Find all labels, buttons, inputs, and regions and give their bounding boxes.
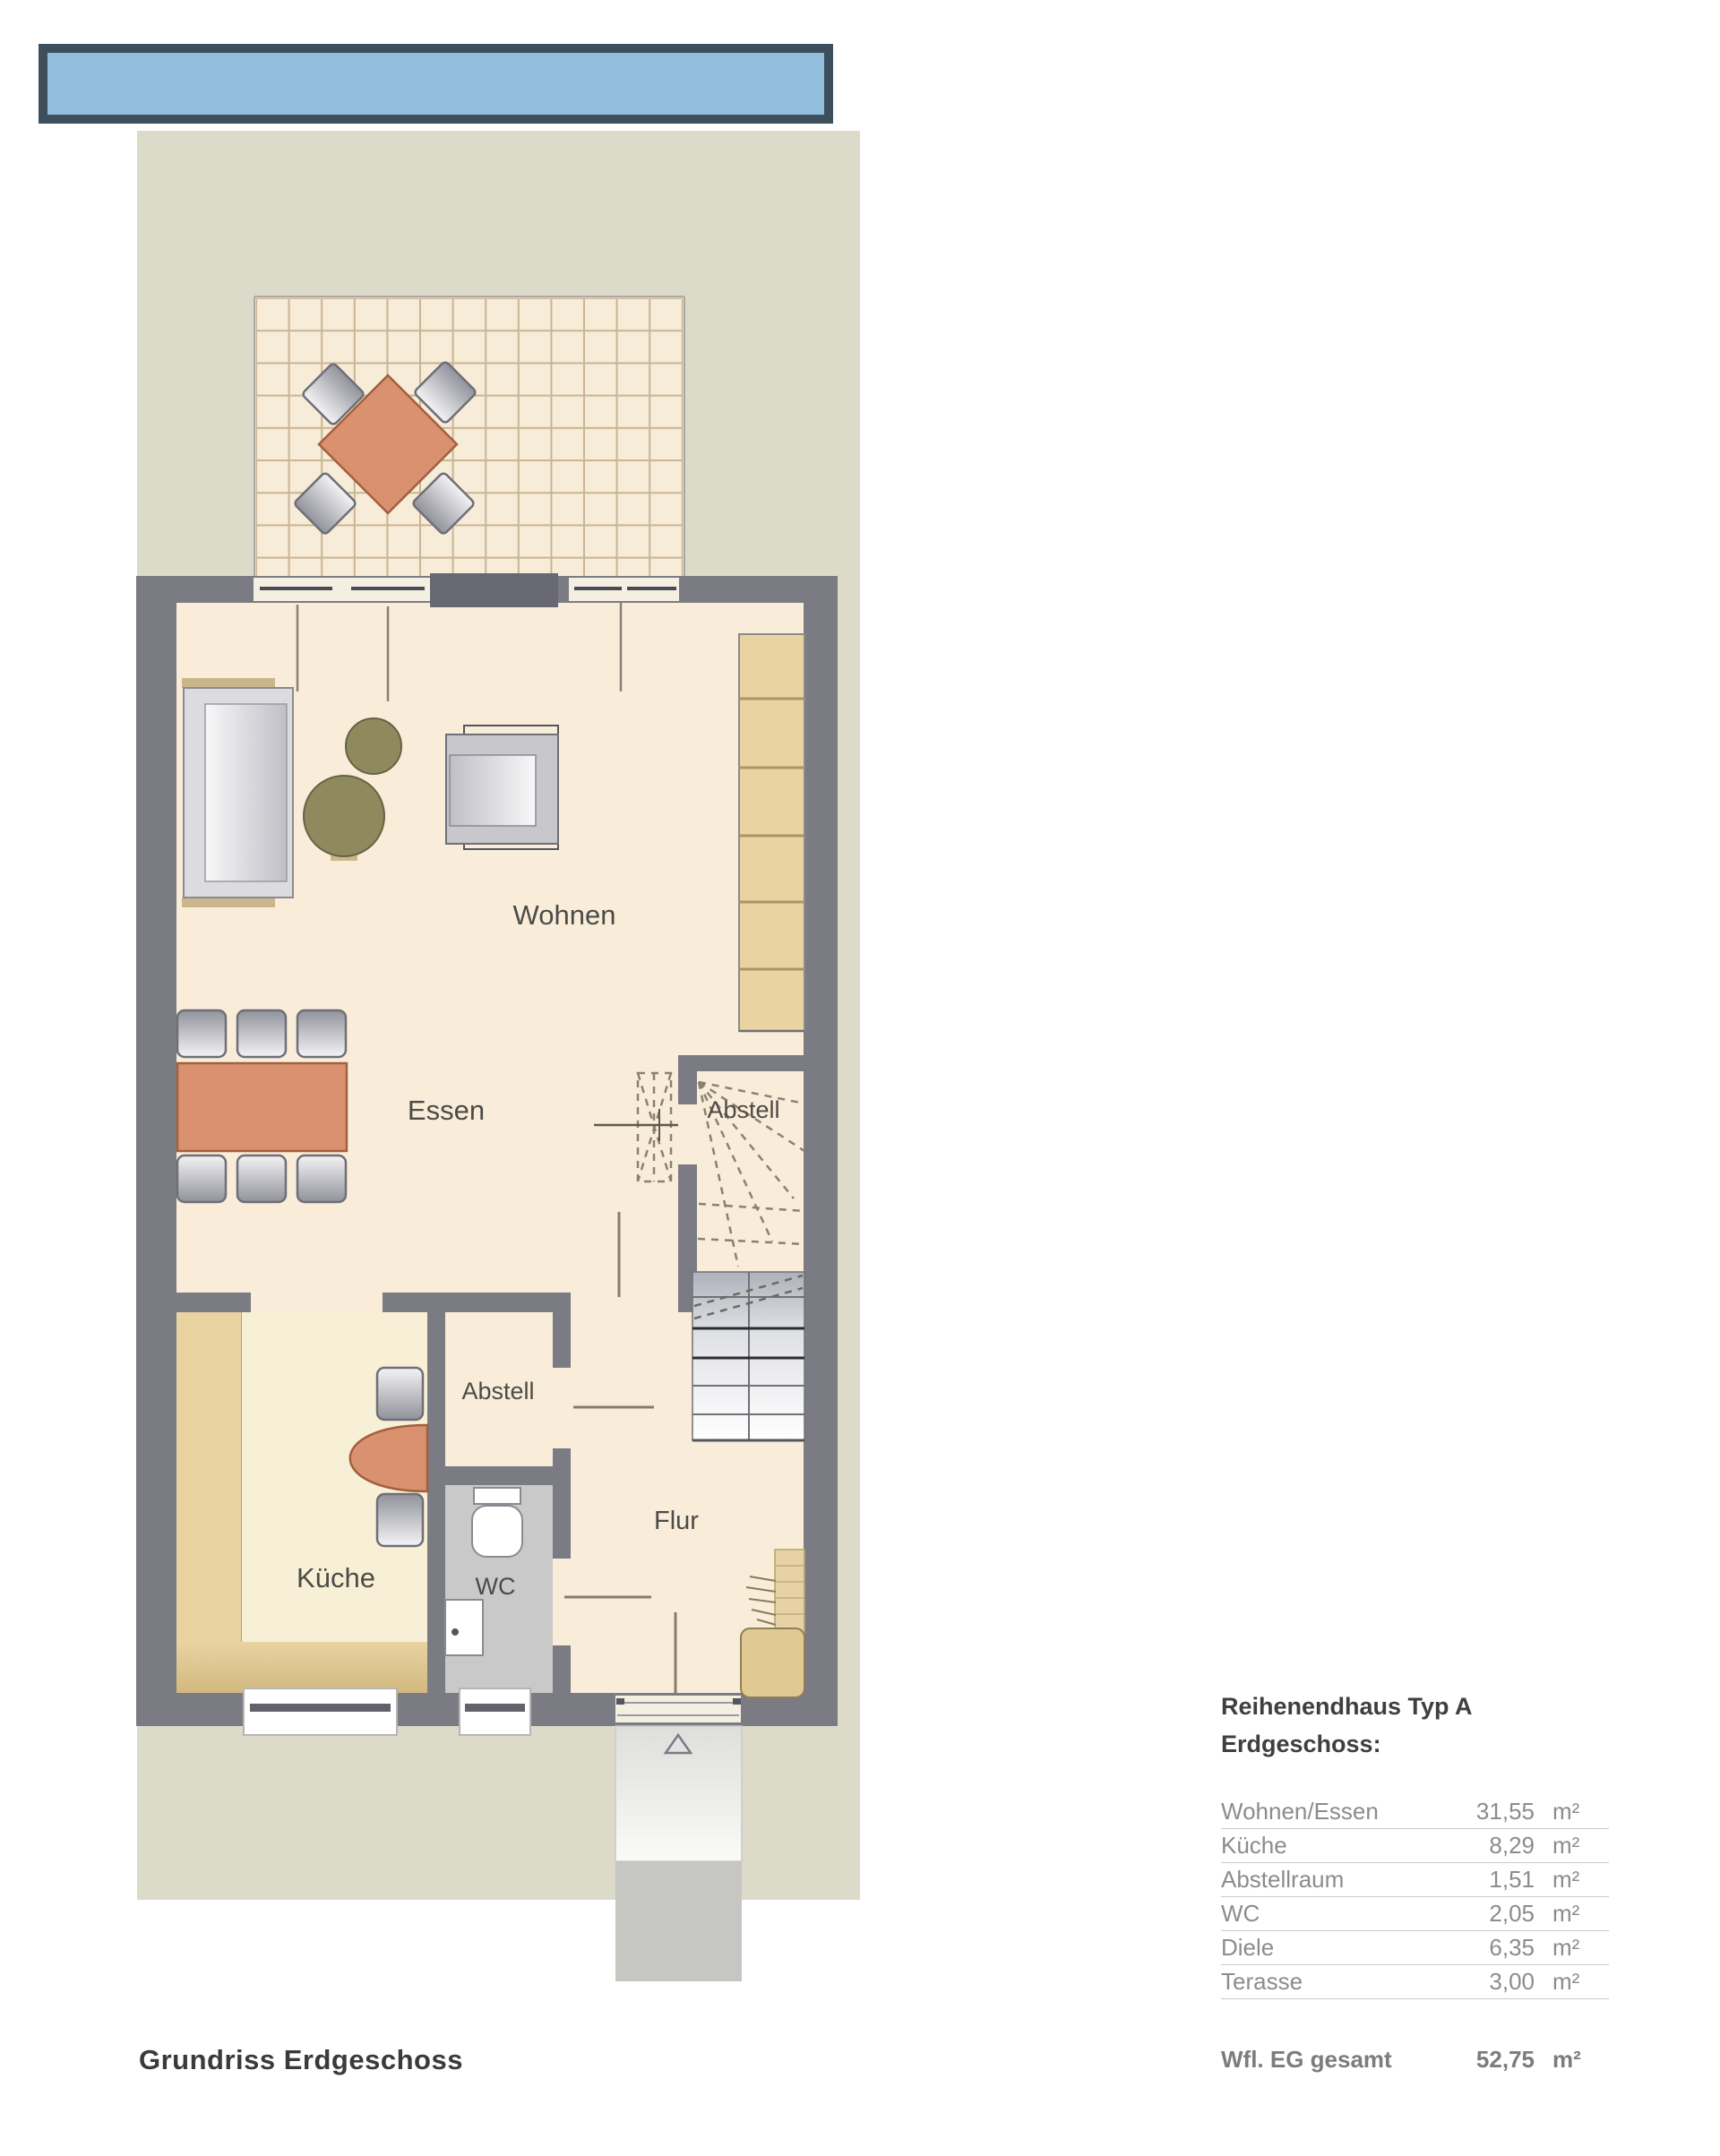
sofa — [182, 678, 293, 907]
room-area: 2,05 — [1443, 1900, 1535, 1928]
room-name: Diele — [1221, 1934, 1443, 1962]
legend-rows: Wohnen/Essen 31,55 m² Küche 8,29 m² Abst… — [1221, 1795, 1609, 1999]
room-name: Küche — [1221, 1832, 1443, 1860]
plant-icon — [304, 776, 384, 856]
legend-row: Terasse 3,00 m² — [1221, 1965, 1609, 1999]
terrace-door — [430, 573, 558, 607]
room-label-kueche: Küche — [297, 1562, 375, 1593]
room-area: 1,51 — [1443, 1866, 1535, 1894]
room-name: Terasse — [1221, 1968, 1443, 1996]
entrance-walkway — [615, 1726, 742, 1981]
room-area: 8,29 — [1443, 1832, 1535, 1860]
page-title: Grundriss Erdgeschoss — [139, 2044, 463, 2076]
legend-row: Abstellraum 1,51 m² — [1221, 1863, 1609, 1897]
room-area: 6,35 — [1443, 1934, 1535, 1962]
legend-row: WC 2,05 m² — [1221, 1897, 1609, 1931]
area-legend: Reihenendhaus Typ A Erdgeschoss: Wohnen/… — [1221, 1688, 1609, 2074]
room-label-essen: Essen — [408, 1095, 485, 1126]
kitchen — [176, 1312, 427, 1693]
legend-title-line1: Reihenendhaus Typ A — [1221, 1688, 1609, 1725]
area-unit: m² — [1535, 1866, 1609, 1894]
area-unit: m² — [1535, 1934, 1609, 1962]
kitchen-chair — [377, 1368, 423, 1420]
kitchen-counter — [176, 1312, 242, 1693]
total-value: 52,75 — [1443, 2046, 1535, 2074]
sink-icon — [445, 1600, 483, 1655]
room-area: 3,00 — [1443, 1968, 1535, 1996]
area-unit: m² — [1535, 1832, 1609, 1860]
room-label-wc: WC — [476, 1573, 516, 1600]
room-label-abstell-stairs: Abstell — [707, 1096, 779, 1123]
kitchen-counter — [176, 1642, 427, 1693]
total-unit: m² — [1535, 2046, 1609, 2074]
room-name: Abstellraum — [1221, 1866, 1443, 1894]
area-unit: m² — [1535, 1968, 1609, 1996]
room-area: 31,55 — [1443, 1798, 1535, 1825]
toilet-icon — [472, 1506, 522, 1557]
armchair — [446, 726, 558, 849]
stairs — [692, 1272, 804, 1440]
room-name: Wohnen/Essen — [1221, 1798, 1443, 1825]
room-label-flur: Flur — [654, 1507, 699, 1535]
dining-table — [177, 1063, 347, 1151]
dining-set — [177, 1010, 347, 1202]
legend-row: Wohnen/Essen 31,55 m² — [1221, 1795, 1609, 1829]
room-label-wohnen: Wohnen — [513, 899, 616, 931]
shelf-unit — [739, 634, 804, 1031]
total-label: Wfl. EG gesamt — [1221, 2046, 1443, 2074]
entrance-opening — [615, 1696, 741, 1722]
legend-title: Reihenendhaus Typ A Erdgeschoss: — [1221, 1688, 1609, 1763]
legend-row: Küche 8,29 m² — [1221, 1829, 1609, 1863]
legend-total-row: Wfl. EG gesamt 52,75 m² — [1221, 2046, 1609, 2074]
banner-bar — [39, 44, 833, 124]
area-unit: m² — [1535, 1900, 1609, 1928]
kitchen-chair — [377, 1494, 423, 1546]
room-name: WC — [1221, 1900, 1443, 1928]
plant-icon — [346, 718, 401, 774]
room-label-abstell-kitchen: Abstell — [461, 1378, 534, 1404]
legend-title-line2: Erdgeschoss: — [1221, 1725, 1609, 1763]
terrace — [254, 296, 684, 589]
toilet-icon — [474, 1488, 520, 1504]
area-unit: m² — [1535, 1798, 1609, 1825]
legend-row: Diele 6,35 m² — [1221, 1931, 1609, 1965]
